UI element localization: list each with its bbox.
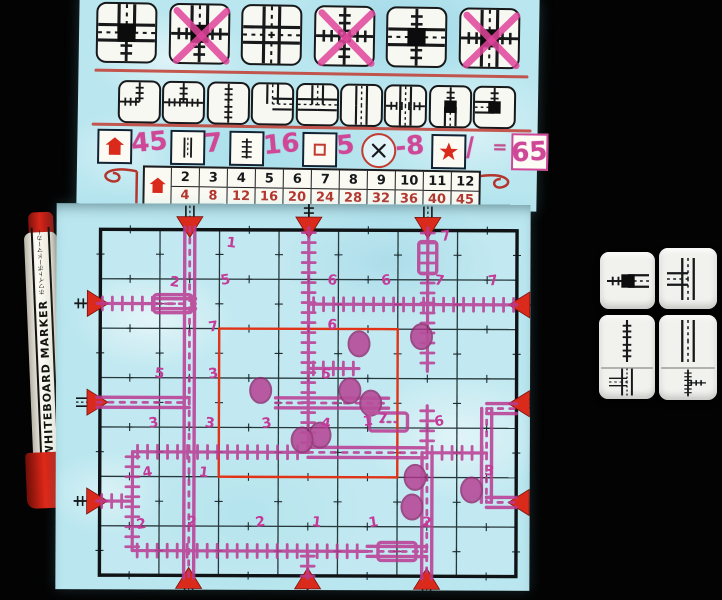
road-straight: [340, 84, 384, 128]
road-curve: [251, 82, 295, 126]
route-die-2[interactable]: [659, 248, 717, 309]
turn-number: 7: [434, 272, 446, 289]
house-icon: [144, 167, 171, 203]
star-icon: [436, 139, 461, 164]
house-score-cell: 16: [255, 187, 282, 204]
turn-number: 6: [326, 316, 338, 333]
turn-number: 2: [169, 274, 181, 291]
rail-icon: [234, 136, 259, 161]
house-count-cell: 5: [256, 169, 283, 187]
handwritten-score-value: 16: [262, 128, 301, 161]
turn-number: 5: [154, 365, 166, 382]
equals-sign: =: [492, 137, 507, 158]
turn-number: 1: [225, 235, 237, 252]
house-count-cell: 4: [228, 169, 255, 187]
turn-number: 1: [311, 514, 323, 531]
house-count-cell: 8: [340, 171, 367, 189]
turn-number: 3: [484, 463, 496, 480]
marker-label-japanese: ホワイトボードマーカー: [37, 229, 47, 295]
station-curve: [473, 86, 517, 130]
house-icon: [102, 134, 127, 159]
marker-label-text: WHITEBOARD MARKER: [37, 300, 57, 458]
rail-score-box: [229, 131, 265, 167]
overpass: [384, 84, 428, 128]
die-face-station-straight-h: [600, 252, 655, 309]
house-count-cell: 11: [424, 172, 451, 190]
house-count-cell: 7: [312, 170, 339, 188]
station-straight: [428, 85, 472, 129]
road-t: [295, 83, 339, 127]
house-count-cell: 2: [172, 168, 199, 186]
drawn-station-blob: [348, 331, 369, 356]
used-tile-x-mark: [315, 7, 377, 69]
route-die-4[interactable]: [659, 315, 717, 400]
drawn-station-blob: [461, 477, 482, 502]
rail-curve: [118, 80, 162, 124]
die-face-road-straight: [659, 315, 717, 367]
handwritten-score-value: -8: [394, 130, 425, 162]
table-scene: WHITEBOARD MARKER ホワイトボードマーカー 457165-8/=…: [0, 0, 722, 600]
house-count-cell: 6: [284, 170, 311, 188]
handwritten-score-value: 5: [335, 130, 356, 161]
turn-number: 7: [377, 410, 389, 427]
center-square-icon: [307, 137, 332, 162]
drawn-station-blob: [401, 495, 422, 520]
handwritten-score-value: 7: [203, 128, 224, 159]
house-score-cell: 8: [199, 186, 226, 203]
error-icon: [366, 138, 391, 163]
score-sheet-top-flap: 457165-8/=65 243841251662072482893210361…: [76, 0, 539, 212]
house-count-cell: 12: [452, 172, 479, 190]
drawn-station-blob: [405, 465, 426, 490]
house-count-cell: 3: [200, 168, 227, 186]
turn-number: 5: [320, 366, 332, 383]
used-tile-x-mark: [461, 9, 523, 71]
road-icon: [175, 135, 200, 160]
die-face-road-t-left: [659, 248, 717, 309]
house-score-cell: 24: [311, 188, 338, 205]
turn-number: 6: [326, 272, 338, 289]
road-crossroads: [241, 4, 303, 66]
special-station-rail3-road1-crossed: [168, 3, 230, 65]
error-score-box: [361, 133, 397, 169]
house-score-box: [97, 129, 133, 165]
handwritten-score-value: 45: [130, 126, 169, 159]
special-station-crossing-2-crossed: [459, 7, 521, 69]
total-score-value: 65: [511, 136, 549, 168]
play-sheet: 17256677675353334176341222112: [55, 203, 530, 591]
rail-crossroads-crossed: [313, 5, 375, 67]
special-station-road3-rail1: [96, 2, 158, 64]
rail-straight: [206, 81, 250, 125]
turn-number: 2: [186, 514, 198, 531]
used-tile-x-mark: [170, 5, 232, 67]
die-face-rail-t-right: [659, 371, 717, 394]
drawn-station-blob: [339, 378, 360, 403]
board-grid[interactable]: 17256677675353334176341222112: [55, 203, 530, 591]
house-score-cell: 20: [283, 188, 310, 205]
star-score-box: [431, 134, 467, 170]
drawn-station-blob: [250, 378, 271, 403]
total-score-box: 65: [511, 133, 549, 171]
handwritten-score-value: /: [464, 132, 476, 163]
road-score-box: [170, 130, 206, 166]
route-die-3[interactable]: [599, 315, 655, 399]
die-face-road-t-front: [599, 371, 655, 394]
turn-number: 3: [204, 415, 216, 432]
die-face-rail-straight: [599, 315, 655, 367]
center-square-score-box: [302, 132, 338, 168]
house-count-cell: 10: [396, 171, 423, 189]
special-station-crossing: [386, 6, 448, 68]
route-die-1[interactable]: [600, 252, 655, 309]
drawn-station-blob: [411, 324, 432, 349]
turn-number: 2: [421, 514, 433, 531]
house-count-cell: 9: [368, 171, 395, 189]
rail-t: [162, 81, 206, 125]
drawn-station-blob: [292, 427, 313, 452]
house-score-cell: 12: [227, 187, 254, 204]
house-score-cell: 4: [171, 186, 198, 203]
turn-number: 1: [198, 464, 210, 481]
